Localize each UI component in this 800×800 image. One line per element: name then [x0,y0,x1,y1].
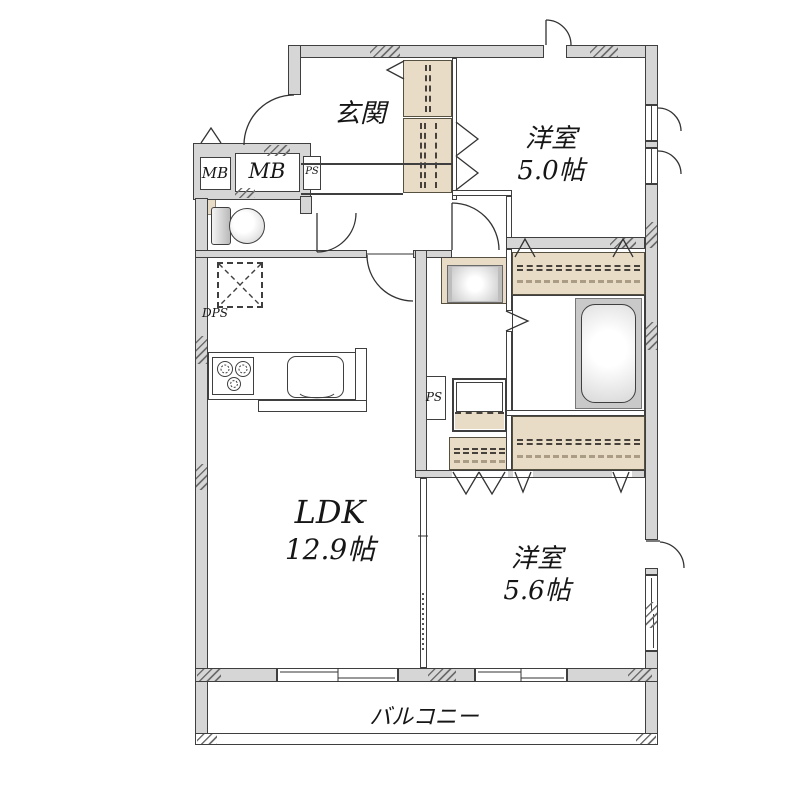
toilet-tank [211,207,231,245]
wall-right-4 [645,568,658,575]
bedroom-bottom-closet-wide [512,416,645,470]
room-bedroom-top-size: 5.0帖 [517,150,584,187]
room-ldk-size: 12.9帖 [285,528,375,568]
pipe-space-top-label: PS [305,166,319,177]
window-bedroom-top-2 [645,148,658,184]
window-bedroom-top-1 [645,105,658,141]
room-ldk-name: LDK [295,493,366,531]
wall-top-left [288,45,544,58]
dps-box [217,262,263,308]
wall-toilet-east [300,196,312,214]
washing-machine-drum [452,267,498,301]
washbasin-counter [455,412,504,429]
wall-hall-south-a [195,250,367,258]
hall-shoe-cabinet [403,60,452,117]
wall-nook-east [506,196,512,241]
wall-bath-south [506,410,645,416]
washroom-door-arc [452,203,499,250]
wall-bath-west-b [506,331,512,412]
wall-bedroom-top-west [452,58,457,200]
balcony-label: バルコニー [369,699,479,731]
kitchen-sink [287,356,344,398]
washbasin-inner [456,382,503,412]
genkan-step-line [301,163,452,165]
sliding-door-panel [422,592,424,650]
wall-bath-west-c [506,412,512,470]
stove [212,357,254,395]
wall-genkan-west [288,45,301,95]
balcony-window-1 [277,668,398,682]
kitchen-counter-front [258,400,367,412]
bathtub [581,304,636,403]
top-door-arc [546,20,571,45]
window-arc-1 [658,108,681,131]
wall-nook-north [452,190,512,196]
meter-box-small-label: MB [202,164,228,182]
balcony-window-2 [475,668,567,682]
floor-plan: 玄関 洋室 5.0帖 LDK 12.9帖 洋室 5.6帖 バルコニー MB MB… [0,0,800,800]
bedroom-top-closet [512,252,645,295]
bedroom-bottom-closet-left [449,437,510,470]
room-genkan-label: 玄関 [334,93,386,130]
wall-right-2 [645,141,658,148]
meter-box-large-label: MB [249,159,286,183]
wall-washroom-west [415,250,427,478]
genkan-step-line-2 [301,193,403,195]
entrance-door-arc [244,95,294,145]
wall-right-1 [645,45,658,105]
window-arc-2 [658,151,681,174]
wall-right-5 [645,651,658,745]
bedroom-top-wardrobe [403,118,452,193]
pipe-space-middle-label: PS [426,390,442,404]
ldk-door-arc [367,255,413,301]
toilet-door-arc [317,213,356,252]
toilet-bowl [229,208,265,244]
room-bedroom-bottom-size: 5.6帖 [503,570,570,607]
balcony-rail [195,733,658,745]
wall-bath-west-a [506,249,512,311]
dps-label: DPS [202,306,228,320]
side-door-arc [660,542,684,568]
